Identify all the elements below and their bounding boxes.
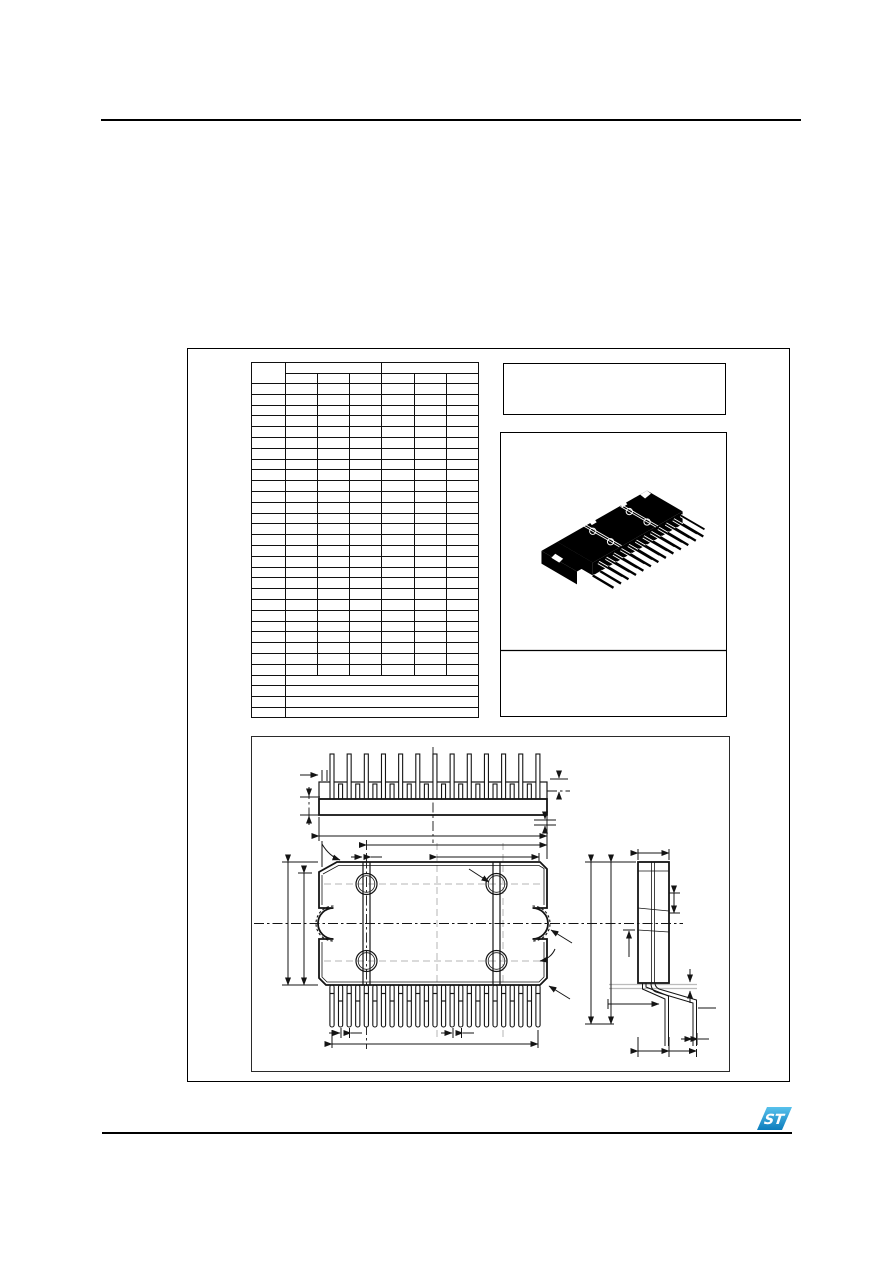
table-cell [382,459,414,470]
table-cell [382,513,414,524]
table-cell [446,513,478,524]
table-cell [382,653,414,664]
table-cell [318,589,350,600]
table-row [252,481,479,492]
table-cell [382,567,414,578]
table-cell [318,578,350,589]
table-cell [350,589,382,600]
table-cell [446,448,478,459]
table-cell [286,696,479,707]
table-cell [318,384,350,395]
table-cell [318,481,350,492]
table-title-box [503,363,726,415]
table-cell [382,610,414,621]
table-cell [252,405,286,416]
table-cell [252,416,286,427]
table-cell [350,437,382,448]
table-cell [252,545,286,556]
table-cell [350,567,382,578]
table-cell [286,427,318,438]
outline-drawing [252,737,729,1071]
table-cell [350,653,382,664]
table-cell [350,664,382,675]
table-cell [414,481,446,492]
table-cell [446,491,478,502]
table-cell [382,524,414,535]
table-cell [286,535,318,546]
table-cell [286,664,318,675]
table-cell [252,599,286,610]
table-cell [414,384,446,395]
table-cell [414,643,446,654]
table-cell [446,578,478,589]
table-cell [446,384,478,395]
table-cell [286,599,318,610]
table-cell [318,535,350,546]
table-cell [252,491,286,502]
table-cell [318,545,350,556]
top-view [300,747,570,843]
table-row [252,459,479,470]
table-cell [286,610,318,621]
table-cell [286,394,318,405]
table-cell [414,599,446,610]
table-cell [286,567,318,578]
table-row [252,664,479,675]
table-cell [318,643,350,654]
footer-rule [102,1132,792,1134]
table-cell [286,481,318,492]
table-cell [318,599,350,610]
table-cell [318,394,350,405]
table-cell [446,599,478,610]
table-cell [350,481,382,492]
table-cell [382,664,414,675]
table-row [252,437,479,448]
table-cell [286,437,318,448]
table-cell [350,524,382,535]
table-cell [286,545,318,556]
table-cell [382,374,414,384]
table-row [252,643,479,654]
table-cell [286,675,479,686]
table-cell [318,567,350,578]
table-cell [286,621,318,632]
table-cell [414,664,446,675]
table-row [252,632,479,643]
table-cell [446,610,478,621]
table-cell [414,502,446,513]
table-cell [286,491,318,502]
table-cell [382,427,414,438]
table-cell [350,384,382,395]
table-cell [382,437,414,448]
table-cell [414,567,446,578]
table-row [252,470,479,481]
table-cell [350,374,382,384]
table-cell [414,513,446,524]
table-row [252,405,479,416]
table-cell [350,448,382,459]
table-cell [446,502,478,513]
table-cell [446,653,478,664]
table-row [252,621,479,632]
table-cell [318,524,350,535]
table-cell [350,632,382,643]
front-view [282,840,572,1049]
table-cell [252,437,286,448]
table-cell [350,459,382,470]
table-row [252,610,479,621]
table-cell [252,363,286,384]
table-cell [286,632,318,643]
table-cell [382,578,414,589]
table-row [252,675,479,686]
table-cell [382,621,414,632]
table-cell [318,513,350,524]
table-cell [286,384,318,395]
table-cell [252,707,286,718]
table-cell [382,556,414,567]
table-row [252,394,479,405]
table-cell [446,427,478,438]
table-cell [286,643,318,654]
table-row [252,696,479,707]
outline-drawing-box [251,736,730,1072]
table-cell [350,513,382,524]
table-row [252,686,479,697]
table-cell [350,502,382,513]
table-cell [318,621,350,632]
table-cell [446,664,478,675]
table-cell [446,621,478,632]
table-cell [252,448,286,459]
table-cell [446,545,478,556]
mechanical-data-table [251,362,479,718]
st-logo-icon: ST [757,1107,792,1130]
table-cell [318,491,350,502]
table-cell [382,502,414,513]
table-cell [382,384,414,395]
table-cell [318,664,350,675]
table-cell [382,394,414,405]
table-row [252,384,479,395]
table-cell [286,653,318,664]
table-cell [414,535,446,546]
table-cell [350,535,382,546]
table-cell [318,610,350,621]
table-cell [286,374,318,384]
table-row [252,589,479,600]
table-cell [382,632,414,643]
table-cell [318,427,350,438]
table-cell [414,405,446,416]
table-cell [382,535,414,546]
table-cell [286,459,318,470]
table-cell [318,437,350,448]
mechanical-data-table-wrap [251,362,479,718]
table-cell [414,621,446,632]
table-cell [286,578,318,589]
table-cell [446,374,478,384]
table-cell [350,427,382,438]
table-cell [252,427,286,438]
table-cell [446,567,478,578]
table-cell [252,470,286,481]
table-cell [446,643,478,654]
table-cell [414,427,446,438]
table-cell [252,632,286,643]
table-cell [414,653,446,664]
table-cell [286,416,318,427]
table-cell [446,459,478,470]
table-row [252,513,479,524]
table-cell [286,707,479,718]
table-cell [382,491,414,502]
table-cell [414,491,446,502]
table-row [252,599,479,610]
table-cell [318,448,350,459]
table-cell [382,599,414,610]
table-cell [414,394,446,405]
table-cell [350,394,382,405]
table-cell [382,545,414,556]
table-cell [286,448,318,459]
table-cell [382,470,414,481]
table-cell [446,416,478,427]
table-row [252,363,479,374]
table-cell [414,459,446,470]
table-row [252,653,479,664]
table-cell [382,481,414,492]
table-cell [350,416,382,427]
table-cell [252,524,286,535]
table-cell [414,524,446,535]
table-row [252,567,479,578]
table-cell [252,589,286,600]
table-cell [252,535,286,546]
table-cell [252,394,286,405]
table-row [252,502,479,513]
table-cell [414,589,446,600]
table-cell [350,578,382,589]
table-cell [446,535,478,546]
table-cell [350,643,382,654]
table-cell [382,643,414,654]
package-illustration-box [500,432,727,717]
st-logo: ST [757,1107,792,1130]
table-cell [382,589,414,600]
table-cell [446,405,478,416]
table-cell [318,556,350,567]
table-cell [446,632,478,643]
table-cell [350,491,382,502]
table-row [252,416,479,427]
table-cell [286,524,318,535]
table-cell [446,524,478,535]
table-cell [286,405,318,416]
package-isometric-illustration [501,433,726,716]
table-cell [446,470,478,481]
table-cell [252,384,286,395]
table-cell [318,502,350,513]
table-cell [382,416,414,427]
table-row [252,524,479,535]
table-cell [318,459,350,470]
table-cell [414,448,446,459]
table-cell [414,632,446,643]
table-cell [350,621,382,632]
table-cell [252,556,286,567]
table-row [252,427,479,438]
table-row [252,535,479,546]
table-cell [318,653,350,664]
table-cell [382,405,414,416]
table-cell [350,610,382,621]
table-cell [414,437,446,448]
table-cell [252,643,286,654]
table-cell [252,459,286,470]
table-row [252,578,479,589]
table-cell [446,589,478,600]
table-cell [286,686,479,697]
table-cell [414,556,446,567]
table-cell [286,363,382,374]
datasheet-page: { "document": { "kind": "package-mechani… [0,0,893,1263]
table-cell [446,437,478,448]
side-view [585,849,716,1057]
table-cell [446,481,478,492]
table-cell [414,545,446,556]
table-cell [350,470,382,481]
table-row [252,556,479,567]
table-cell [286,589,318,600]
table-cell [318,405,350,416]
table-cell [252,578,286,589]
table-cell [318,470,350,481]
table-cell [252,502,286,513]
table-cell [286,470,318,481]
table-cell [252,610,286,621]
table-cell [414,578,446,589]
table-cell [252,664,286,675]
st-logo-letters: ST [763,1112,786,1128]
table-row [252,374,479,384]
table-cell [286,502,318,513]
table-cell [252,653,286,664]
table-cell [318,416,350,427]
table-cell [382,363,479,374]
table-cell [318,374,350,384]
table-cell [350,545,382,556]
table-cell [414,470,446,481]
table-cell [252,481,286,492]
table-cell [414,416,446,427]
table-cell [252,686,286,697]
table-cell [286,556,318,567]
table-cell [252,513,286,524]
table-row [252,448,479,459]
table-cell [252,567,286,578]
table-row [252,545,479,556]
table-row [252,491,479,502]
table-cell [252,696,286,707]
table-cell [446,556,478,567]
table-cell [286,513,318,524]
table-row [252,707,479,718]
table-cell [446,394,478,405]
table-cell [350,599,382,610]
table-cell [414,610,446,621]
table-cell [252,621,286,632]
table-cell [318,632,350,643]
table-cell [350,556,382,567]
table-cell [414,374,446,384]
table-cell [382,448,414,459]
header-rule [101,119,801,121]
table-cell [350,405,382,416]
table-cell [252,675,286,686]
